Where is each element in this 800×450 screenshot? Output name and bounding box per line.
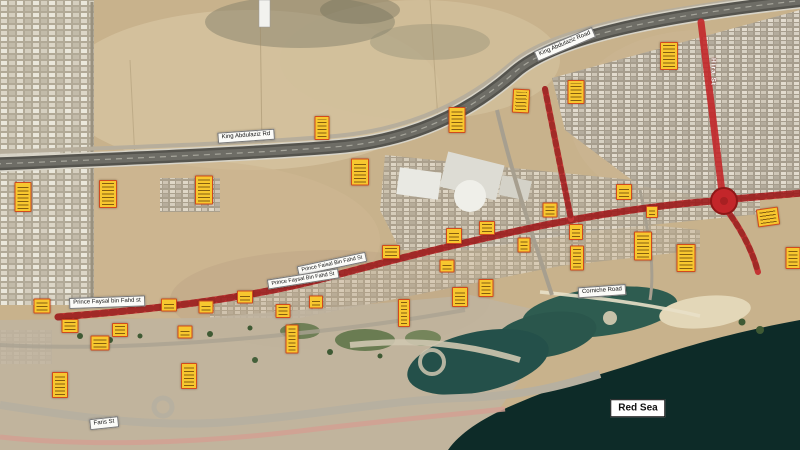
- map-marker: [99, 180, 117, 208]
- faris-st-label: Faris St: [89, 416, 119, 430]
- map-marker: [286, 325, 299, 354]
- king-abdulaziz-rd-label-west: King Abdulaziz Rd: [217, 129, 274, 144]
- red-sea-label: Red Sea: [610, 399, 665, 417]
- map-marker: [309, 296, 323, 309]
- map-marker: [276, 304, 291, 318]
- king-abdulaziz-rd-label-east: King Abdulaziz Road: [534, 27, 596, 62]
- map-marker: [568, 80, 585, 104]
- map-marker: [449, 107, 466, 133]
- prince-faisal-label-west: Prince Faysal bin Fahd st: [69, 295, 145, 308]
- map-marker: [616, 184, 632, 200]
- map-marker: [786, 247, 800, 269]
- map-marker: [543, 203, 558, 218]
- map-marker: [199, 301, 214, 314]
- map-marker: [570, 246, 584, 271]
- map-marker: [315, 116, 330, 140]
- map-marker: [34, 299, 51, 314]
- map-marker: [91, 336, 110, 351]
- map-marker: [181, 363, 197, 389]
- map-marker: [237, 291, 253, 304]
- map-marker: [512, 89, 530, 114]
- map-marker: [62, 319, 79, 333]
- map-marker: [677, 244, 696, 272]
- map-marker: [398, 299, 410, 327]
- map-marker: [660, 42, 678, 70]
- hira-st-label: Hira St: [710, 58, 717, 86]
- map-marker: [479, 279, 494, 297]
- map-marker: [351, 159, 369, 186]
- map-marker: [112, 323, 128, 337]
- map-marker: [440, 260, 455, 273]
- map-marker: [479, 221, 495, 235]
- map-marker: [569, 224, 583, 240]
- map-marker: [756, 207, 780, 228]
- map-marker: [452, 287, 468, 307]
- map-marker: [195, 176, 213, 205]
- map-marker: [518, 238, 531, 253]
- corniche-road-label: Corniche Road: [578, 284, 627, 298]
- map-marker: [161, 299, 177, 312]
- map-marker: [15, 182, 32, 212]
- satellite-map-figure: King Abdulaziz RdKing Abdulaziz RoadPrin…: [0, 0, 800, 450]
- map-marker: [178, 326, 193, 339]
- map-marker: [382, 245, 400, 259]
- annotations-overlay: King Abdulaziz RdKing Abdulaziz RoadPrin…: [0, 0, 800, 450]
- map-marker: [446, 228, 462, 244]
- map-marker: [646, 206, 658, 218]
- map-marker: [634, 232, 652, 261]
- map-marker: [52, 372, 68, 398]
